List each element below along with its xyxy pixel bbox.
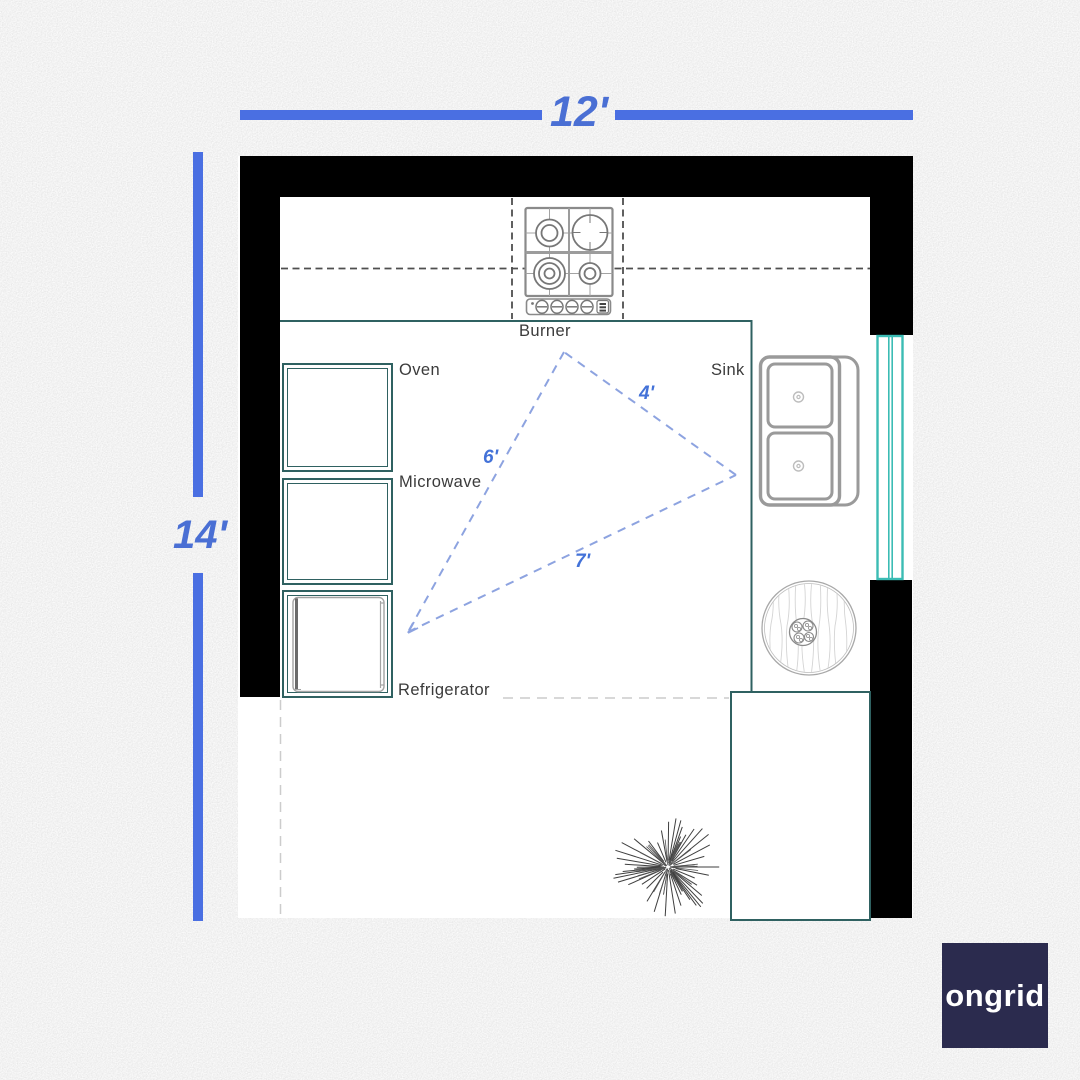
oven-label: Oven	[399, 361, 440, 380]
floor-plan-poster: Burner Oven Microwave Refrigerator Sink …	[0, 0, 1080, 1080]
left-dimension-value: 14'	[168, 515, 232, 555]
gas-cooktop-icon	[523, 205, 615, 317]
work-triangle	[408, 352, 736, 632]
kitchen-island	[730, 691, 871, 921]
refrigerator-box-inner	[287, 595, 388, 693]
triangle-distance-4ft: 4'	[639, 383, 654, 405]
left-dimension-line-top	[193, 152, 203, 497]
refrigerator-label: Refrigerator	[398, 681, 490, 700]
floor-plant-icon	[608, 812, 728, 920]
round-table-icon	[760, 580, 858, 676]
top-dimension-value: 12'	[540, 91, 618, 134]
sink-icon	[757, 353, 861, 509]
brand-logo-text: ongrid	[945, 978, 1044, 1014]
top-dimension-line-left	[240, 110, 542, 120]
burner-label: Burner	[519, 322, 571, 341]
oven-box-inner	[287, 368, 388, 467]
sink-label: Sink	[711, 361, 745, 380]
microwave-box	[282, 478, 393, 585]
brand-logo: ongrid	[942, 943, 1048, 1048]
left-dimension-line-bottom	[193, 573, 203, 921]
microwave-box-inner	[287, 483, 388, 580]
triangle-distance-7ft: 7'	[575, 551, 590, 573]
microwave-label: Microwave	[399, 473, 481, 492]
refrigerator-door-icon	[288, 596, 388, 693]
refrigerator-box	[282, 590, 393, 698]
top-dimension-line-right	[615, 110, 913, 120]
table-plant-icon	[790, 619, 817, 646]
plan-linework	[0, 0, 1080, 1080]
oven-box	[282, 363, 393, 472]
triangle-distance-6ft: 6'	[483, 447, 498, 469]
